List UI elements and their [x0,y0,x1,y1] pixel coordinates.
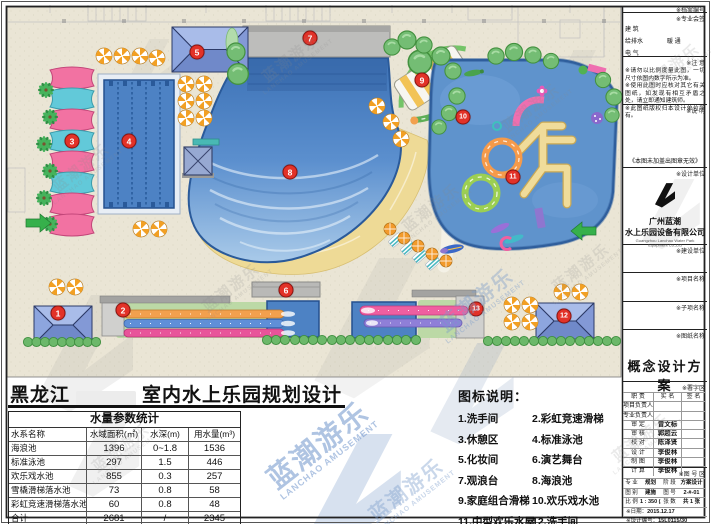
discipline: 建 筑 [625,24,667,33]
cell-depth: / [142,512,189,524]
sign-name [653,401,681,410]
company-logo [652,180,678,210]
sign-name: 郭超云 [653,429,681,438]
col-header: 水深(m) [142,428,189,441]
marker-5: 5 [190,45,205,60]
stamp-note: 《本图未加盖出图章无效》 [623,156,707,165]
cell-area: 855 [87,470,142,483]
table-row: 欢乐戏水池8550.3257 [9,470,240,484]
sheet-title: 黑龙江 室内水上乐园规划设计 [10,380,342,407]
company-name-cn1: 广州蓝潮 [623,216,707,227]
note-line: ※使用此图时应核对其它有关图纸，如发现有相互矛盾之处，请立即通知建筑师。 [625,83,705,106]
rainbow-racing-slide [100,296,319,338]
sign-name: 李俊林 [653,448,681,457]
legend-title: 图标说明： [458,386,622,405]
title-underline [8,405,345,408]
cell-volume: 1536 [189,442,240,455]
water-parameters-table: 水量参数统计 水系名称 水域面积(㎡) 水深(m) 用水量(m³) 海浪池139… [8,411,241,524]
legend-item: 5.化妆间 [458,452,532,467]
scale-value: 1 : 350 (A3) [640,497,661,507]
note-line: ※请勿以比例度量此图，一切尺寸依图内数字所示为准。 [625,68,705,83]
sign-signature [681,438,705,447]
legend-item: 10.欢乐戏水池 [532,493,622,508]
spec-label: 专 业 [623,478,640,488]
stage-value: 方案设计 [678,478,705,488]
marker-12: 12 [557,309,572,324]
countersign-label: ※专业会签 [623,13,707,23]
legend-item: 12.洗手间 [532,514,622,524]
cell-name: 标准泳池 [9,456,87,469]
sign-header: 实 名 [653,392,681,401]
marker-7: 7 [303,31,318,46]
cell-area: 73 [87,484,142,497]
table-row-total: 合计2681/2345 [9,512,240,524]
marker-6: 6 [279,283,294,298]
sign-name: 李俊林 [653,457,681,466]
sheets-label: 张 数 [661,497,678,507]
sign-role: 制 图 [623,457,653,466]
marker-11: 11 [506,170,521,185]
table-row: 彩虹竞速滑梯落水池600.848 [9,498,240,512]
marker-8: 8 [283,165,298,180]
col-header: 水域面积(㎡) [87,428,142,441]
legend-item: 8.海浪池 [532,473,622,488]
figure-number-table: 专 业规划阶 段方案设计 图 别建施图 号2-#-01 比 例1 : 350 (… [623,478,707,507]
cell-depth: 0~1.8 [142,442,189,455]
legend-item: 7.观浪台 [458,473,532,488]
page-title: 室内水上乐园规划设计 [142,380,342,407]
cell-area: 1396 [87,442,142,455]
sign-role: 审 定 [623,420,653,429]
cell-name: 彩虹竞速滑梯落水池 [9,498,87,511]
marker-3: 3 [65,134,80,149]
legend-item: 3.休憩区 [458,432,532,447]
legend-item: 6.演艺舞台 [532,452,622,467]
cell-depth: 0.3 [142,470,189,483]
sign-signature [681,420,705,429]
col-header: 用水量(m³) [189,428,240,441]
number-label: 图 号 [661,488,678,498]
design-number-value: 15L0115/30 [658,518,687,524]
col-header: 水系名称 [9,428,87,441]
cell-depth: 0.8 [142,498,189,511]
type-label: 图 别 [623,488,640,498]
legend-item: 11.中型欢乐水屋 [458,514,532,524]
discipline: 电 气 [625,48,667,57]
cell-name: 合计 [9,512,87,524]
sign-signature [681,429,705,438]
cell-volume: 446 [189,456,240,469]
cell-area: 297 [87,456,142,469]
legend-item: 9.家庭组合滑梯 [458,493,532,508]
cell-volume: 2345 [189,512,240,524]
date-value: 2015.12.17 [647,509,675,515]
marker-2: 2 [116,303,131,318]
drawing-sheet: 1 2 3 4 5 6 7 8 9 10 11 12 13 黑龙江 室内水上乐园… [0,0,711,524]
table-title: 水量参数统计 [9,412,240,428]
table-header-row: 水系名称 水域面积(㎡) 水深(m) 用水量(m³) [9,428,240,442]
title-block: ※档案编号 ※专业会签 建 筑 给排水 暖 通 电 气 ※注 意 ※请勿以比例度… [623,4,707,520]
project-name-label: ※项目名称 [623,273,707,283]
figure-number-area-label: ※图 号 区 [623,468,707,478]
legend-item: 1.洗手间 [458,411,532,426]
design-number-line: ※设计编号：15L0115/30 [623,516,707,524]
date-line: ※日期：2015.12.17 [623,507,707,517]
signature-area-label: ※署字区 [623,382,707,392]
cell-name: 欢乐戏水池 [9,470,87,483]
sign-role: 项目负责人 [623,401,653,410]
cell-area: 60 [87,498,142,511]
bench [193,139,219,145]
legend: 图标说明： 1.洗手间 2.彩虹竞速滑梯 3.休憩区 4.标准泳池 5.化妆间 … [458,386,622,524]
marker-10: 10 [456,110,471,125]
sheets-value: 共 1 张 [678,497,705,507]
marker-13: 13 [469,302,484,317]
notice-label: ※注 意 [623,57,707,67]
remark-label: ※说 明 [623,105,707,115]
design-unit-label: ※设计单位 [623,168,707,178]
sign-role: 审 核 [623,429,653,438]
signature-table: 职 责实 名签 名 项目负责人 专业负责人 审 定曾文标 审 核郭超云 校 对陈… [623,392,707,476]
lifeguard-pavilion [182,147,214,178]
cell-volume: 48 [189,498,240,511]
scale-label: 比 例 [623,497,640,507]
region-name: 黑龙江 [10,380,70,407]
sign-header: 签 名 [681,392,705,401]
standard-pool [98,74,180,214]
cell-depth: 0.8 [142,484,189,497]
table-row: 标准泳池2971.5446 [9,456,240,470]
drawing-name-label: ※图纸名称 [623,330,707,340]
table-row: 海浪池13960~1.81536 [9,442,240,456]
sign-role: 设 计 [623,448,653,457]
sign-name [653,411,681,420]
cell-area: 2681 [87,512,142,524]
legend-items: 1.洗手间 2.彩虹竞速滑梯 3.休憩区 4.标准泳池 5.化妆间 6.演艺舞台… [458,411,622,524]
marker-4: 4 [122,134,137,149]
sign-role: 专业负责人 [623,411,653,420]
build-unit-label: ※建设单位 [623,245,707,255]
cell-volume: 58 [189,484,240,497]
cell-depth: 1.5 [142,456,189,469]
number-value: 2-#-01 [678,488,705,498]
sign-signature [681,448,705,457]
date-label: ※日期： [626,509,647,515]
spec-value: 规划 [640,478,661,488]
sign-name: 陈泽贤 [653,438,681,447]
subitem-name-label: ※子项名称 [623,302,707,312]
cell-volume: 257 [189,470,240,483]
discipline-grid: 建 筑 给排水 暖 通 电 气 [623,23,707,58]
sign-signature [681,457,705,466]
discipline: 暖 通 [667,36,709,45]
sign-name: 曾文标 [653,420,681,429]
table-row: 雪橇滑梯落水池730.858 [9,484,240,498]
sign-header: 职 责 [623,392,653,401]
legend-item: 2.彩虹竞速滑梯 [532,411,622,426]
stage-label: 阶 段 [661,478,678,488]
sign-signature [681,411,705,420]
legend-item: 4.标准泳池 [532,432,622,447]
design-number-label: ※设计编号： [626,518,658,524]
cell-name: 海浪池 [9,442,87,455]
cell-name: 雪橇滑梯落水池 [9,484,87,497]
discipline: 给排水 [625,36,667,45]
discipline [667,24,709,33]
type-value: 建施 [640,488,661,498]
company-name-cn2: 水上乐园设备有限公司 [623,227,707,238]
sign-signature [681,401,705,410]
marker-1: 1 [51,306,66,321]
marker-9: 9 [415,73,430,88]
sign-role: 校 对 [623,438,653,447]
